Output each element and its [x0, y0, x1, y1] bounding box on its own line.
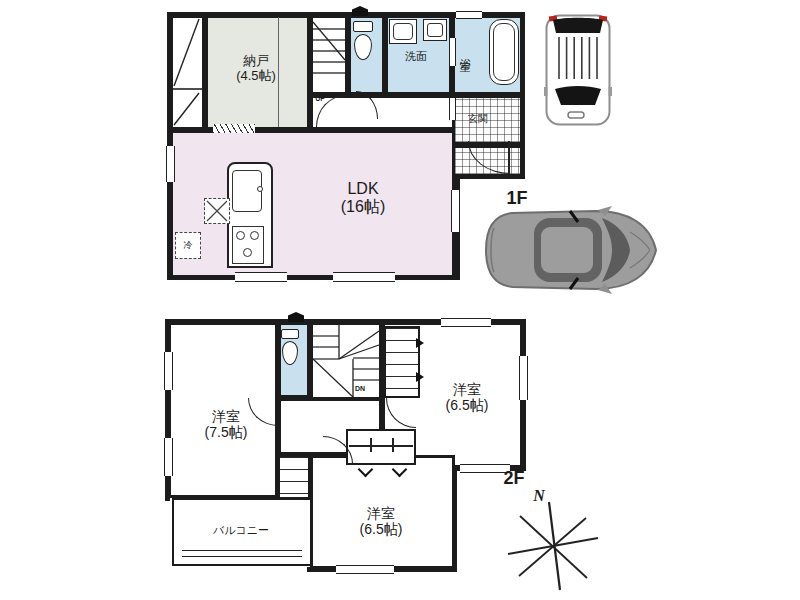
closet-middle-shelf-line — [349, 445, 413, 447]
balcony-label: バルコニー — [186, 522, 296, 538]
closet-middle-pole-2 — [392, 438, 394, 452]
compass-rose — [503, 488, 603, 598]
bedroom-east-name: 洋室 — [453, 381, 481, 397]
floorplan-page: 納戸 (4.5帖) 洗面 浴室 玄関 LDK (16帖) 冷 UP 1F — [0, 0, 800, 600]
closet-middle-pole-1 — [370, 438, 372, 452]
bedroom-south-size: (6.5帖) — [360, 521, 403, 537]
closet-west-strip — [278, 455, 310, 499]
bedroom-west-label: 洋室 (7.5帖) — [171, 401, 281, 447]
window-east-north — [441, 318, 491, 327]
window-west-1 — [164, 352, 173, 390]
wall-2f-south-right — [452, 466, 457, 572]
bedroom-east-label: 洋室 (6.5帖) — [412, 374, 522, 420]
bedroom-east-size: (6.5帖) — [446, 397, 489, 413]
toilet-2f-tank-icon — [281, 329, 299, 339]
window-south-room — [336, 565, 394, 574]
bedroom-south-name: 洋室 — [367, 505, 395, 521]
vent-mark-2f — [288, 312, 304, 322]
sedan-top-view — [478, 206, 660, 294]
bedroom-south-label: 洋室 (6.5帖) — [326, 498, 436, 544]
bedroom-west-name: 洋室 — [212, 408, 240, 424]
closet-middle — [346, 429, 416, 465]
bedroom-west-size: (7.5帖) — [205, 424, 248, 440]
closet-east-door-mark-1 — [416, 338, 424, 348]
van-top-view — [544, 13, 612, 127]
compass-north-label: N — [528, 486, 550, 506]
stairs-down-label: DN — [348, 384, 372, 395]
balcony-railing — [182, 550, 302, 557]
floor-2-plan: 洋室 (7.5帖) 洋室 (6.5帖) 洋室 (6.5帖) バルコニー DN 2… — [0, 0, 800, 600]
